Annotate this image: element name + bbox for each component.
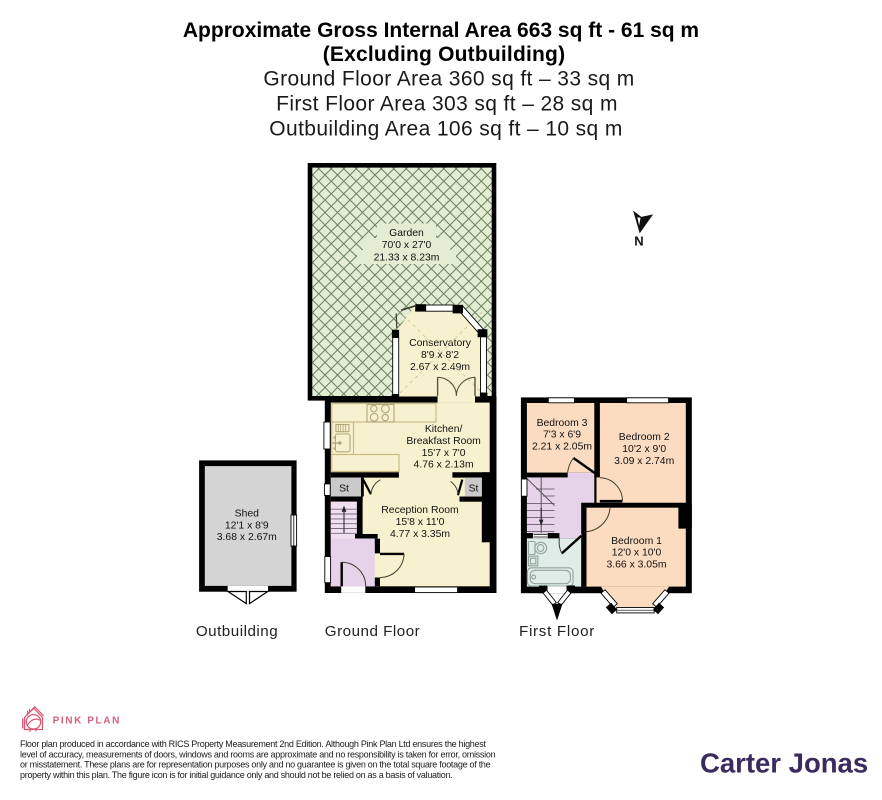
svg-text:2.67 x 2.49m: 2.67 x 2.49m (410, 362, 470, 373)
svg-text:70'0 x 27'0: 70'0 x 27'0 (382, 240, 432, 251)
svg-text:Reception Room: Reception Room (381, 505, 458, 516)
svg-text:St: St (339, 484, 349, 495)
svg-text:N: N (634, 234, 643, 249)
svg-text:Approximate Gross Internal Are: Approximate Gross Internal Area 663 sq f… (183, 19, 699, 42)
svg-text:Bedroom 1: Bedroom 1 (611, 536, 662, 547)
svg-text:Outbuilding Area 106 sq ft – 1: Outbuilding Area 106 sq ft – 10 sq m (269, 117, 622, 140)
svg-text:Breakfast Room: Breakfast Room (406, 436, 481, 447)
svg-text:7'3 x 6'9: 7'3 x 6'9 (543, 430, 581, 441)
svg-text:Outbuilding: Outbuilding (196, 623, 278, 640)
svg-text:15'7 x 7'0: 15'7 x 7'0 (422, 448, 466, 459)
svg-text:Kitchen/: Kitchen/ (425, 424, 463, 435)
svg-text:21.33 x 8.23m: 21.33 x 8.23m (374, 252, 440, 263)
svg-text:Conservatory: Conservatory (409, 338, 472, 349)
svg-text:4.76 x 2.13m: 4.76 x 2.13m (414, 460, 474, 471)
svg-text:First Floor: First Floor (519, 623, 595, 640)
svg-text:Ground Floor: Ground Floor (325, 623, 420, 640)
svg-text:Bedroom 2: Bedroom 2 (619, 432, 670, 443)
svg-text:3.66 x 3.05m: 3.66 x 3.05m (606, 560, 666, 571)
svg-text:Bedroom 3: Bedroom 3 (537, 418, 588, 429)
svg-text:level of accuracy, measurement: level of accuracy, measurements of doors… (20, 749, 496, 759)
svg-text:Shed: Shed (235, 509, 259, 520)
svg-text:3.68 x 2.67m: 3.68 x 2.67m (217, 532, 277, 543)
svg-text:property within this plan. The: property within this plan. The figure ic… (20, 770, 452, 780)
svg-text:4.77 x 3.35m: 4.77 x 3.35m (390, 529, 450, 540)
svg-text:St: St (469, 484, 479, 495)
svg-text:First Floor Area 303 sq ft – 2: First Floor Area 303 sq ft – 28 sq m (276, 92, 618, 115)
svg-text:2.21 x 2.05m: 2.21 x 2.05m (532, 442, 592, 453)
svg-text:PINK PLAN: PINK PLAN (53, 715, 121, 726)
svg-text:10'2 x 9'0: 10'2 x 9'0 (622, 444, 666, 455)
svg-text:Carter Jonas: Carter Jonas (700, 748, 868, 779)
svg-text:Garden: Garden (389, 228, 424, 239)
svg-text:12'1 x 8'9: 12'1 x 8'9 (225, 520, 269, 531)
svg-text:3.09 x 2.74m: 3.09 x 2.74m (614, 456, 674, 467)
svg-text:15'8 x 11'0: 15'8 x 11'0 (396, 517, 445, 528)
svg-text:12'0 x 10'0: 12'0 x 10'0 (612, 548, 662, 559)
svg-text:Ground Floor Area 360 sq ft –: Ground Floor Area 360 sq ft – 33 sq m (263, 67, 634, 90)
svg-text:(Excluding Outbuilding): (Excluding Outbuilding) (323, 43, 566, 66)
svg-text:or misstatement. These plans a: or misstatement. These plans are for rep… (20, 760, 491, 770)
svg-text:Floor plan produced in accorda: Floor plan produced in accordance with R… (20, 739, 486, 749)
